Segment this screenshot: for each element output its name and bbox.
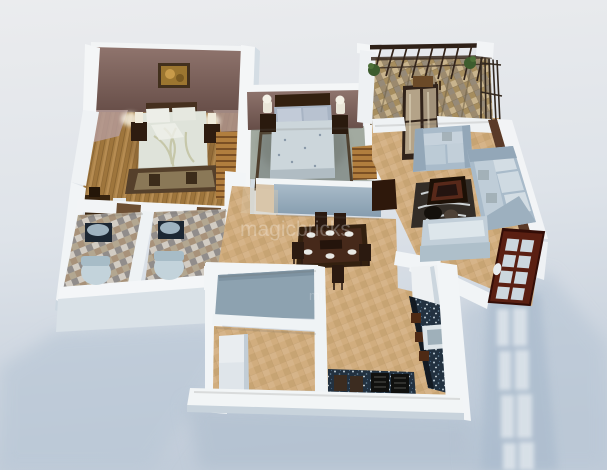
svg-text:mil: mil xyxy=(309,288,326,303)
svg-text:magicbricks: magicbricks xyxy=(240,218,351,241)
